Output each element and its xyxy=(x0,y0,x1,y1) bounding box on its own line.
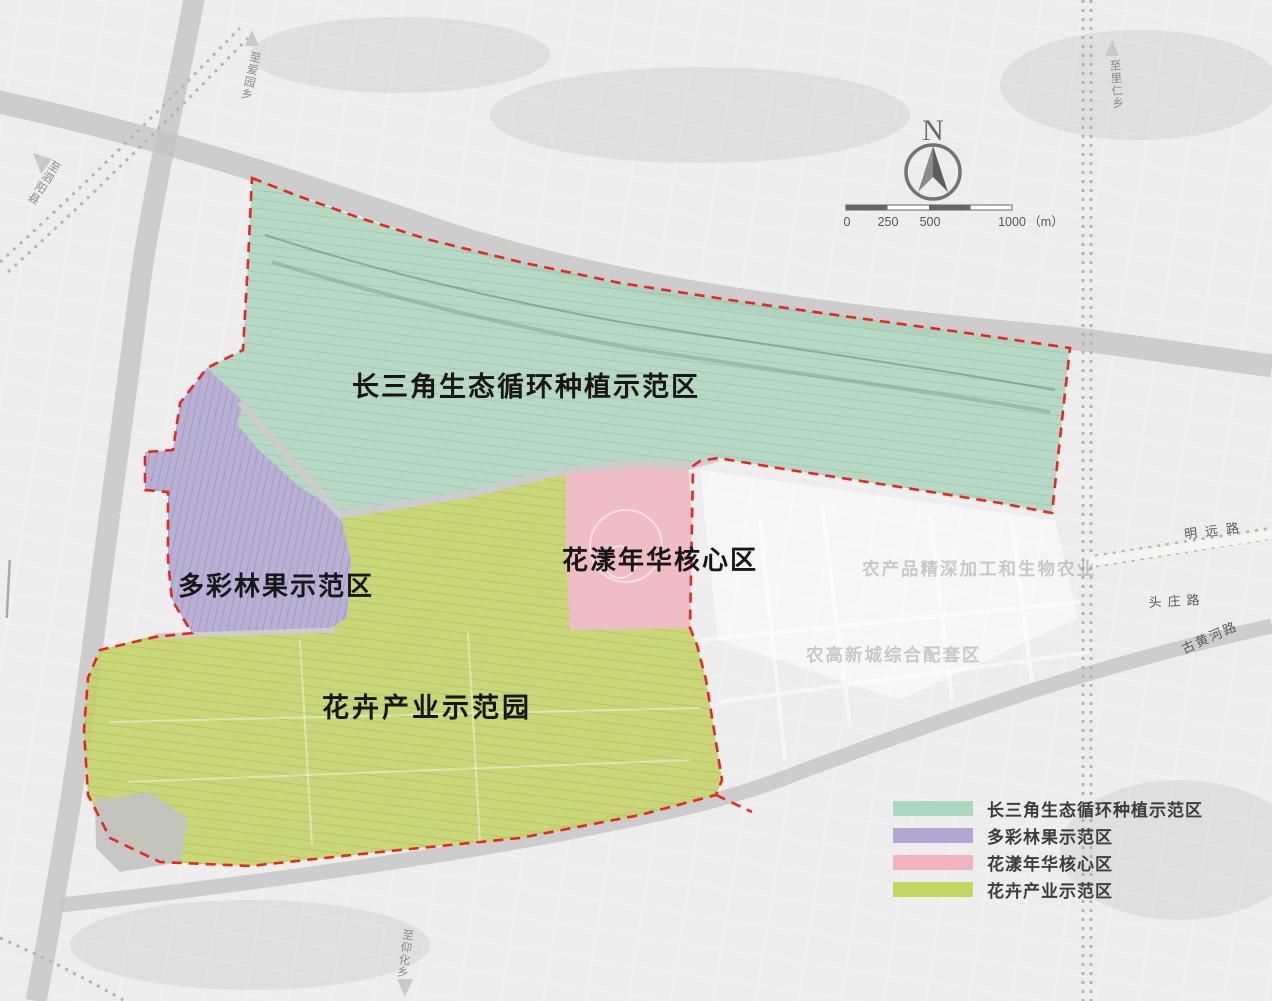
scale-tick-1000: 1000 xyxy=(998,215,1026,229)
zone-label-green: 长三角生态循环种植示范区 xyxy=(352,365,700,404)
legend-swatch-pink xyxy=(893,855,973,870)
legend-label-lime: 花卉产业示范区 xyxy=(987,877,1113,902)
zone-label-pink: 花漾年华核心区 xyxy=(562,540,758,577)
zone-label-purple: 多彩林果示范区 xyxy=(178,566,374,603)
scale-tick-250: 250 xyxy=(878,215,899,229)
road-label-touzhuang: 头庄路 xyxy=(1148,589,1206,611)
legend-item-purple: 多彩林果示范区 xyxy=(893,827,1203,843)
legend-label-purple: 多彩林果示范区 xyxy=(987,823,1113,848)
planning-map: N 0 250 500 1000 （m） 农产品精深加工和生物农业 农高新城综合… xyxy=(0,0,1272,1001)
scale-tick-500: 500 xyxy=(920,215,941,229)
faint-label-new-town: 农高新城综合配套区 xyxy=(806,642,982,667)
legend: 长三角生态循环种植示范区 多彩林果示范区 花漾年华核心区 花卉产业示范区 xyxy=(893,800,1203,908)
scale-unit: （m） xyxy=(1028,215,1063,229)
legend-swatch-purple xyxy=(893,828,973,843)
legend-item-green: 长三角生态循环种植示范区 xyxy=(893,800,1203,816)
north-label: N xyxy=(922,114,944,147)
legend-item-lime: 花卉产业示范区 xyxy=(893,881,1203,897)
legend-swatch-green xyxy=(893,801,973,816)
faint-label-agri-processing: 农产品精深加工和生物农业 xyxy=(862,556,1096,581)
legend-swatch-lime xyxy=(893,882,973,897)
scale-tick-0: 0 xyxy=(844,215,851,229)
legend-label-green: 长三角生态循环种植示范区 xyxy=(987,796,1203,821)
zone-label-lime: 花卉产业示范园 xyxy=(322,686,532,725)
legend-item-pink: 花漾年华核心区 xyxy=(893,854,1203,870)
legend-label-pink: 花漾年华核心区 xyxy=(987,850,1113,875)
